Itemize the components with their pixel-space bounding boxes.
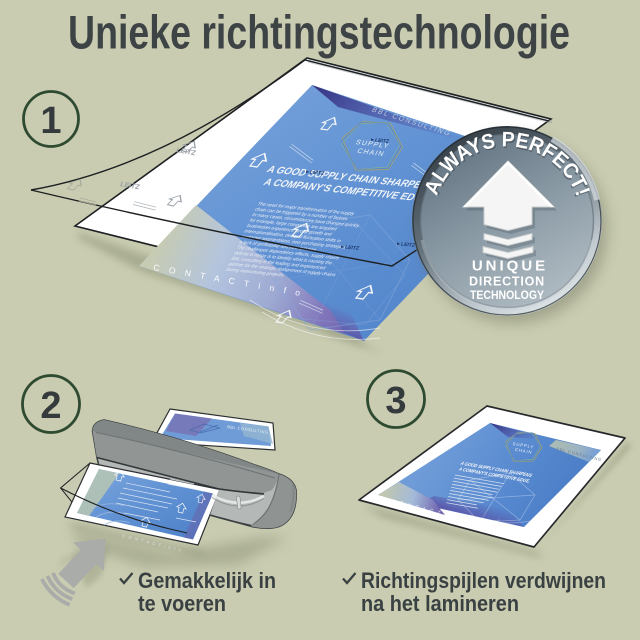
- svg-text:DIRECTION: DIRECTION: [469, 275, 545, 289]
- svg-text:Richtingspijlen verdwijnen: Richtingspijlen verdwijnen: [361, 568, 606, 593]
- svg-text:Unieke richtingstechnologie: Unieke richtingstechnologie: [68, 6, 570, 59]
- svg-text:1: 1: [40, 100, 61, 142]
- svg-text:3: 3: [385, 380, 406, 422]
- svg-text:UNIQUE: UNIQUE: [472, 258, 548, 275]
- svg-text:Gemakkelijk in: Gemakkelijk in: [138, 568, 276, 593]
- svg-text:na het lamineren: na het lamineren: [361, 591, 519, 616]
- svg-text:TECHNOLOGY: TECHNOLOGY: [470, 288, 544, 302]
- svg-text:te voeren: te voeren: [138, 591, 226, 616]
- svg-text:2: 2: [40, 385, 61, 427]
